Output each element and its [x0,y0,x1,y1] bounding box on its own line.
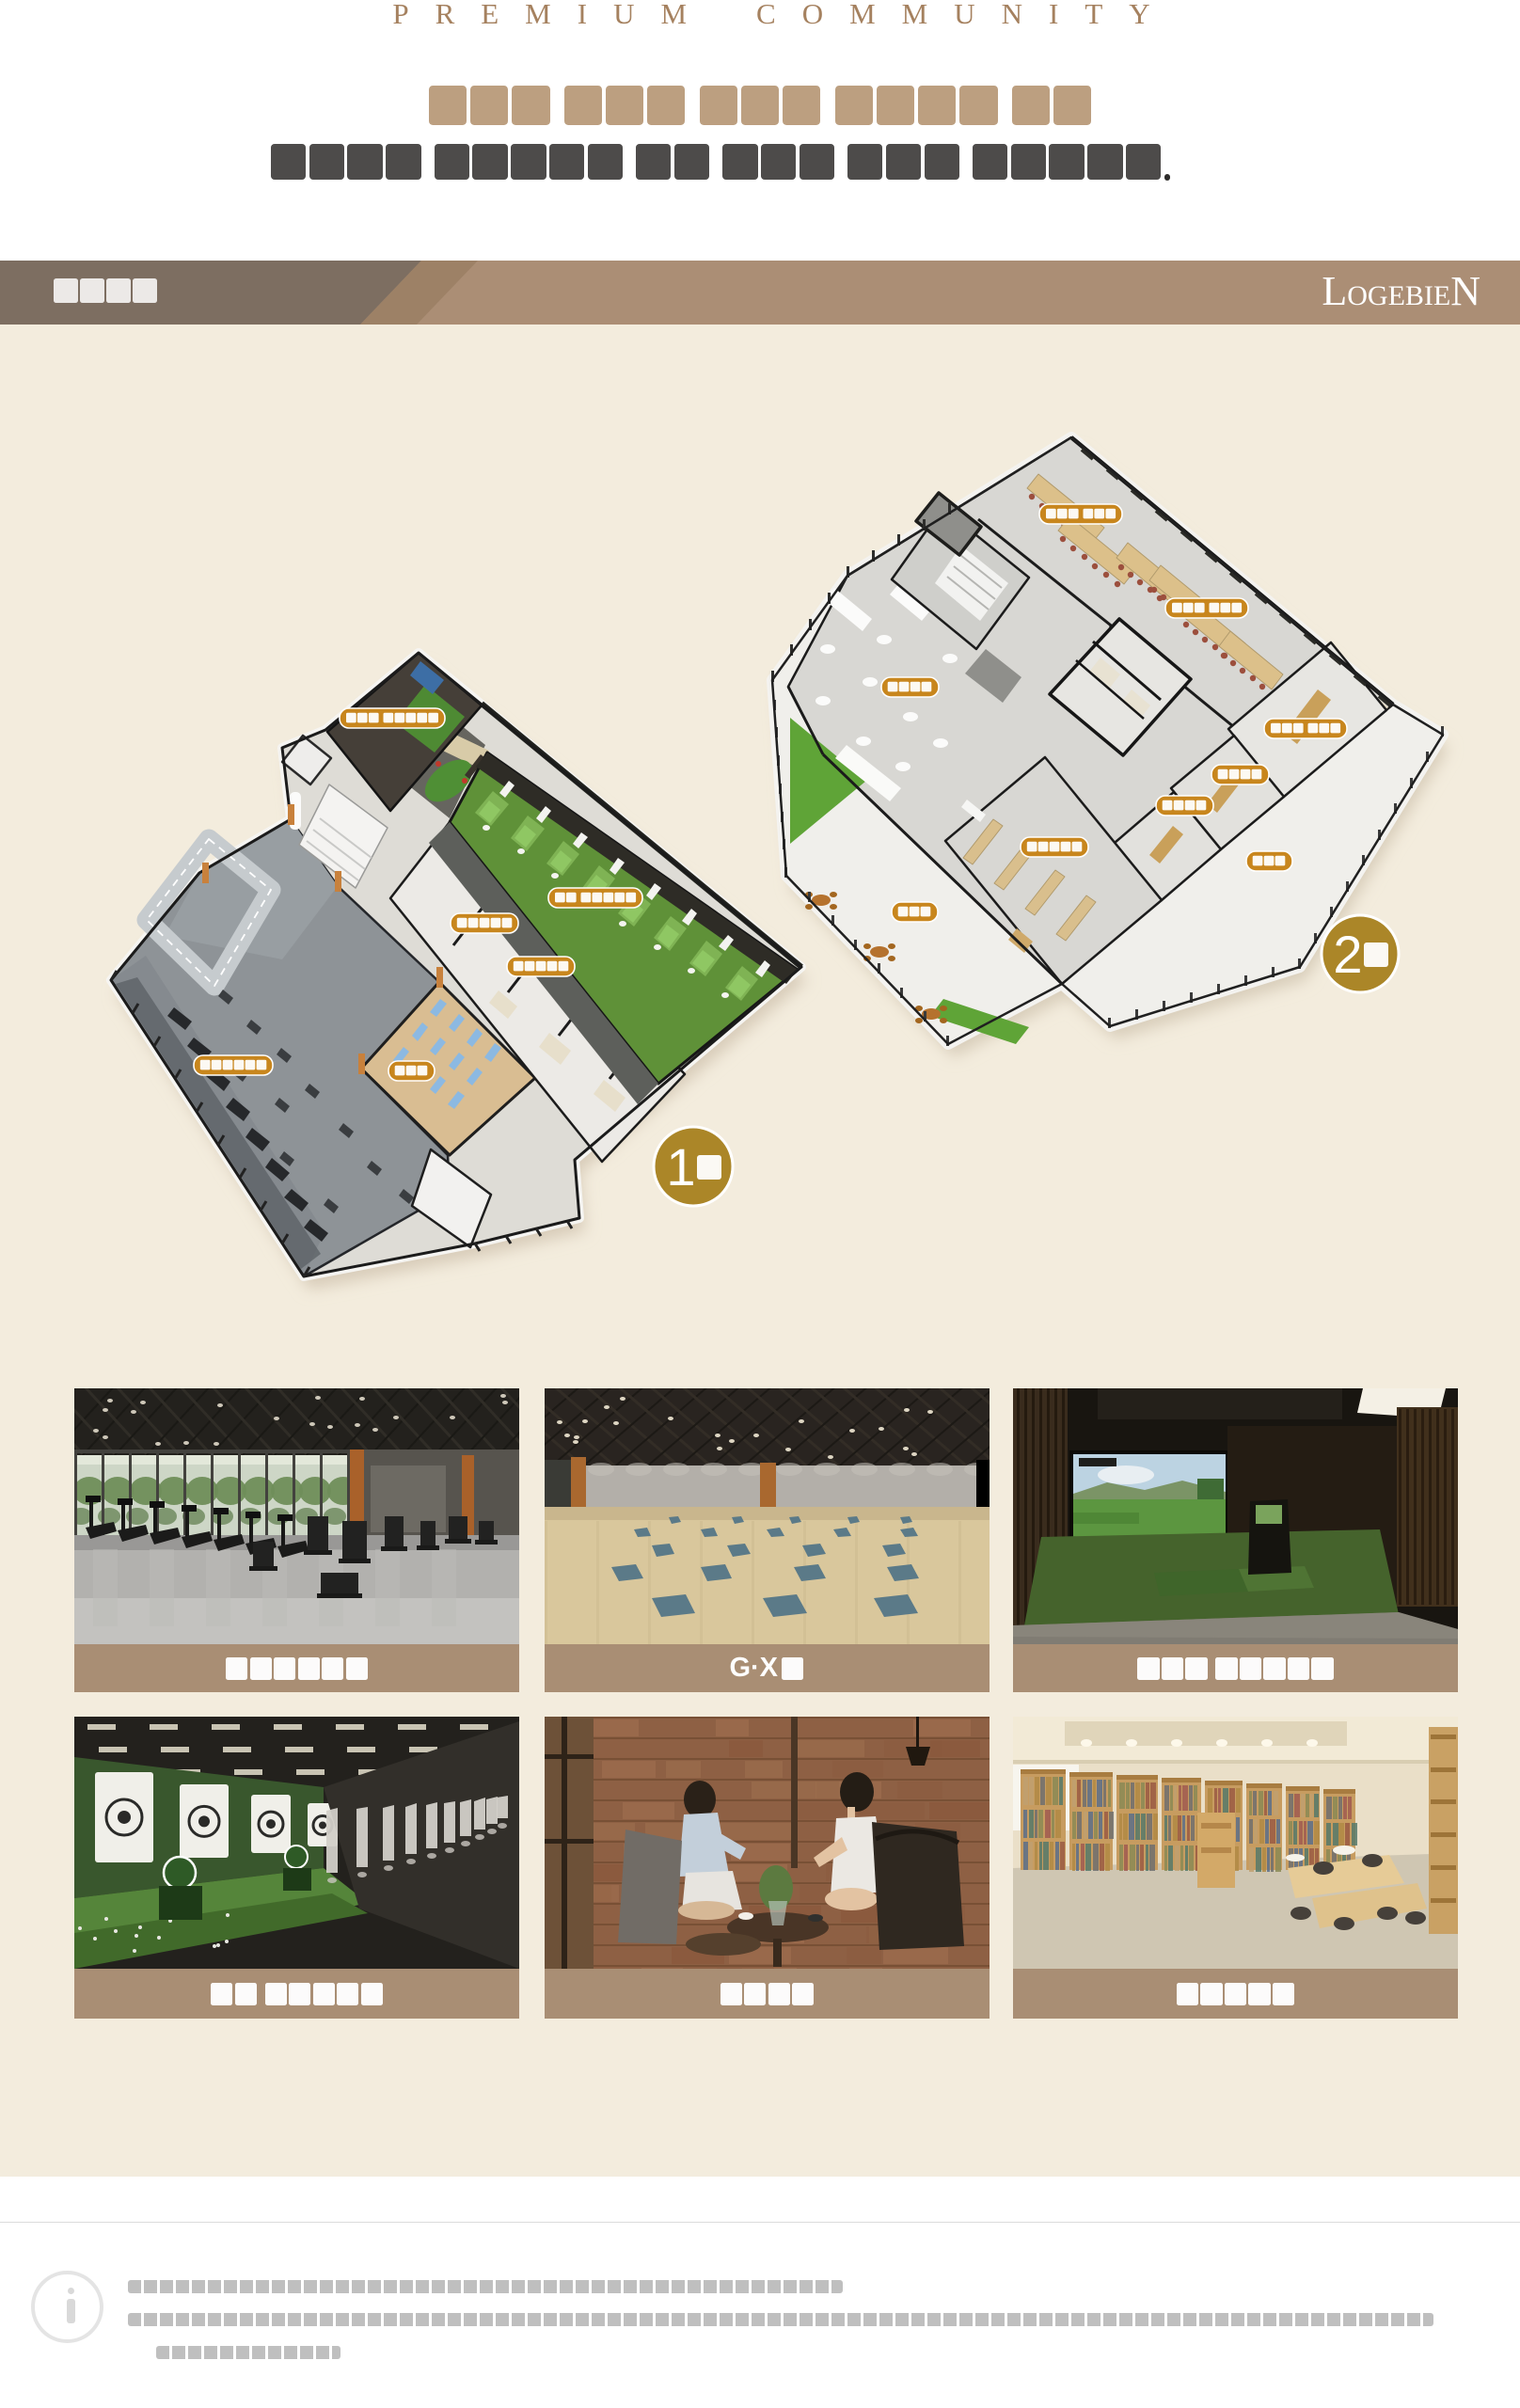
svg-text:2: 2 [1333,925,1362,984]
svg-text:1: 1 [666,1137,695,1196]
